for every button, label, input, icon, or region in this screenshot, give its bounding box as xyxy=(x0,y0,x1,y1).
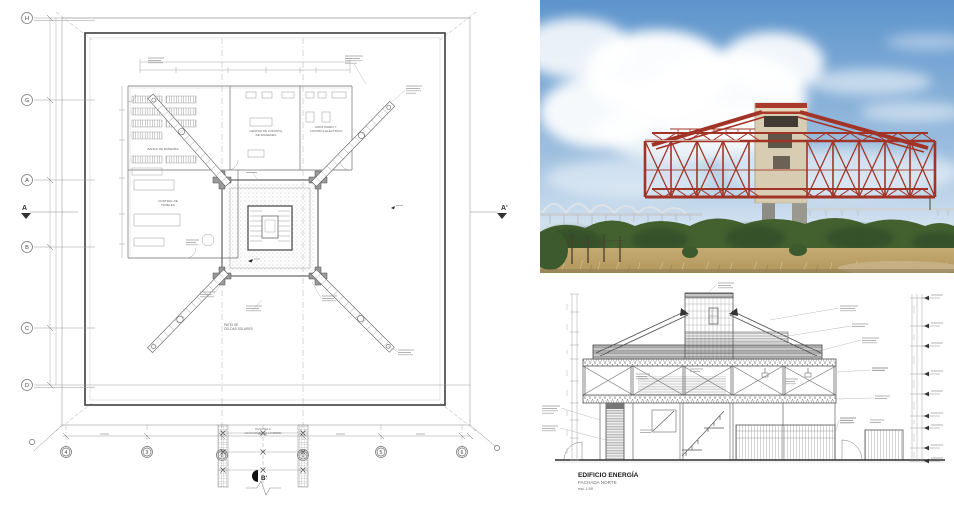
elev-upper-louver-band xyxy=(685,332,788,343)
room-label-centro: DE IMÁGENES xyxy=(256,133,277,137)
section-marker-a-prime: A' xyxy=(470,205,508,219)
floor-plan-drawing: H G A B C D xyxy=(0,0,540,507)
svg-text:CELDAS SOLARES: CELDAS SOLARES xyxy=(224,327,253,331)
plan-level-marker xyxy=(391,206,403,210)
grid-row-label: C xyxy=(25,326,29,332)
grid-row-label: H xyxy=(25,16,29,22)
room-label-paneles: PANELES xyxy=(161,203,175,207)
grid-col-label: 3 xyxy=(146,450,149,456)
elev-louver-band xyxy=(593,345,822,359)
patio-label: PATIO DE CELDAS SOLARES xyxy=(224,323,253,331)
grid-col-label: 5 xyxy=(380,450,383,456)
svg-text:A': A' xyxy=(501,205,508,212)
svg-text:B': B' xyxy=(261,475,267,482)
elev-subtitle: FACHADA NORTE xyxy=(578,480,617,485)
elevation-drawing: EDIFICIO ENERGÍA FACHADA NORTE esc 1:50 xyxy=(540,280,954,507)
elev-title-block: EDIFICIO ENERGÍA FACHADA NORTE esc 1:50 xyxy=(578,470,639,491)
elev-scale: esc 1:50 xyxy=(578,486,594,491)
clouds xyxy=(540,18,954,198)
walkway-label: HACIA EDIFICIO HOMBRE xyxy=(245,431,282,435)
section-marker-a: A xyxy=(21,205,78,219)
elev-truss xyxy=(583,359,836,403)
elev-ground-floor xyxy=(555,403,945,462)
plan-walkway: PASARELA HACIA EDIFICIO HOMBRE B' xyxy=(218,425,308,495)
elev-dim-right xyxy=(910,294,943,463)
grid-col-label: 4 xyxy=(65,450,68,456)
grid-col-label: 6 xyxy=(461,450,464,456)
book-page: H G A B C D xyxy=(0,0,954,507)
right-viaduct xyxy=(802,208,954,211)
elev-level-flags xyxy=(922,295,943,463)
grid-row-label: B xyxy=(25,245,29,251)
grid-row-label: D xyxy=(25,383,29,389)
grid-row-label: G xyxy=(25,98,29,104)
svg-text:A: A xyxy=(22,205,27,212)
photo-edificio-energia xyxy=(540,0,954,273)
elev-dim-left xyxy=(567,294,579,460)
room-label-banco: BANCO DE BATERÍAS xyxy=(147,147,178,151)
plan-core xyxy=(213,171,327,285)
vegetation xyxy=(540,218,954,273)
grid-row-label: A xyxy=(25,178,29,184)
elev-title: EDIFICIO ENERGÍA xyxy=(578,470,639,479)
room-label-monitoreo: CONTROL ELÉCTRICO xyxy=(310,128,343,133)
